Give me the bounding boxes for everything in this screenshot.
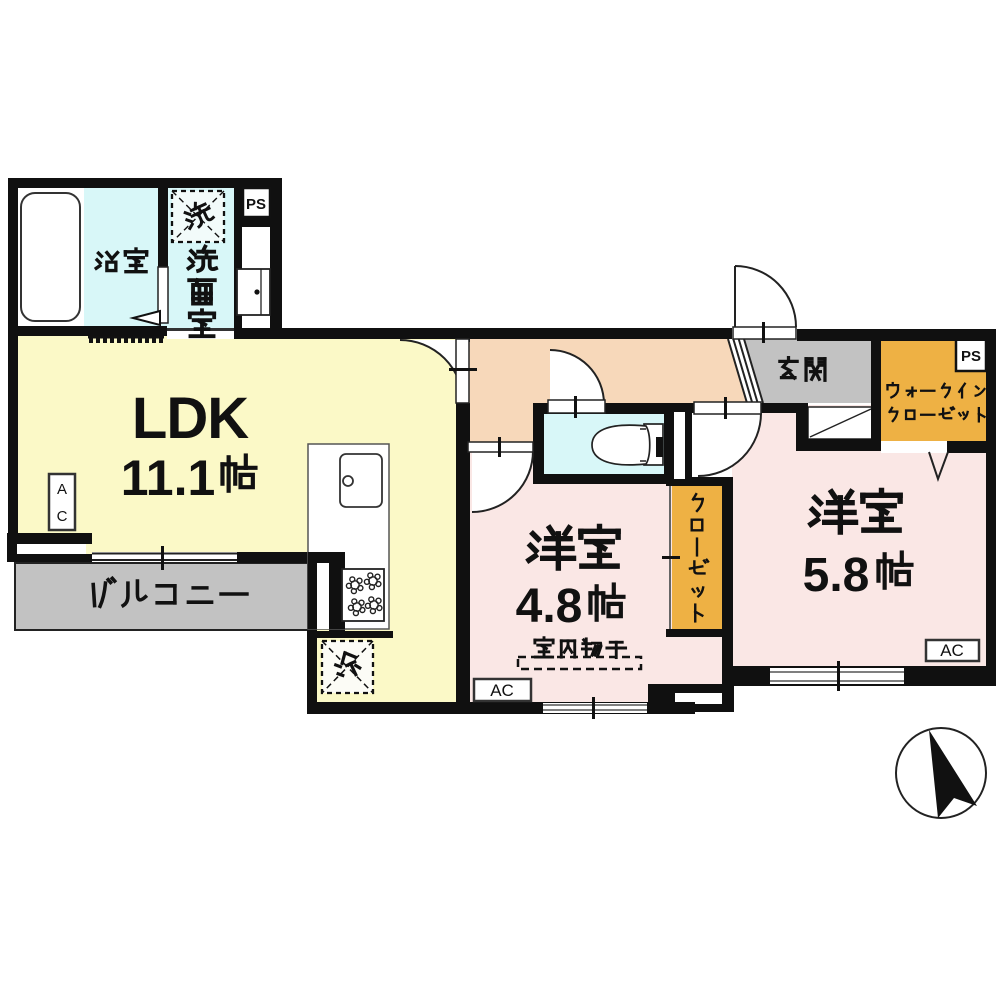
svg-text:5.8: 5.8 [803, 549, 870, 602]
svg-text:A: A [57, 481, 67, 498]
svg-text:11.1: 11.1 [121, 450, 216, 506]
svg-text:PS: PS [961, 348, 981, 365]
svg-text:AC: AC [490, 681, 514, 700]
svg-text:LDK: LDK [132, 386, 249, 451]
svg-text:PS: PS [246, 196, 266, 213]
svg-text:4.8: 4.8 [516, 580, 583, 633]
svg-text:C: C [57, 508, 68, 525]
svg-text:AC: AC [940, 641, 964, 660]
